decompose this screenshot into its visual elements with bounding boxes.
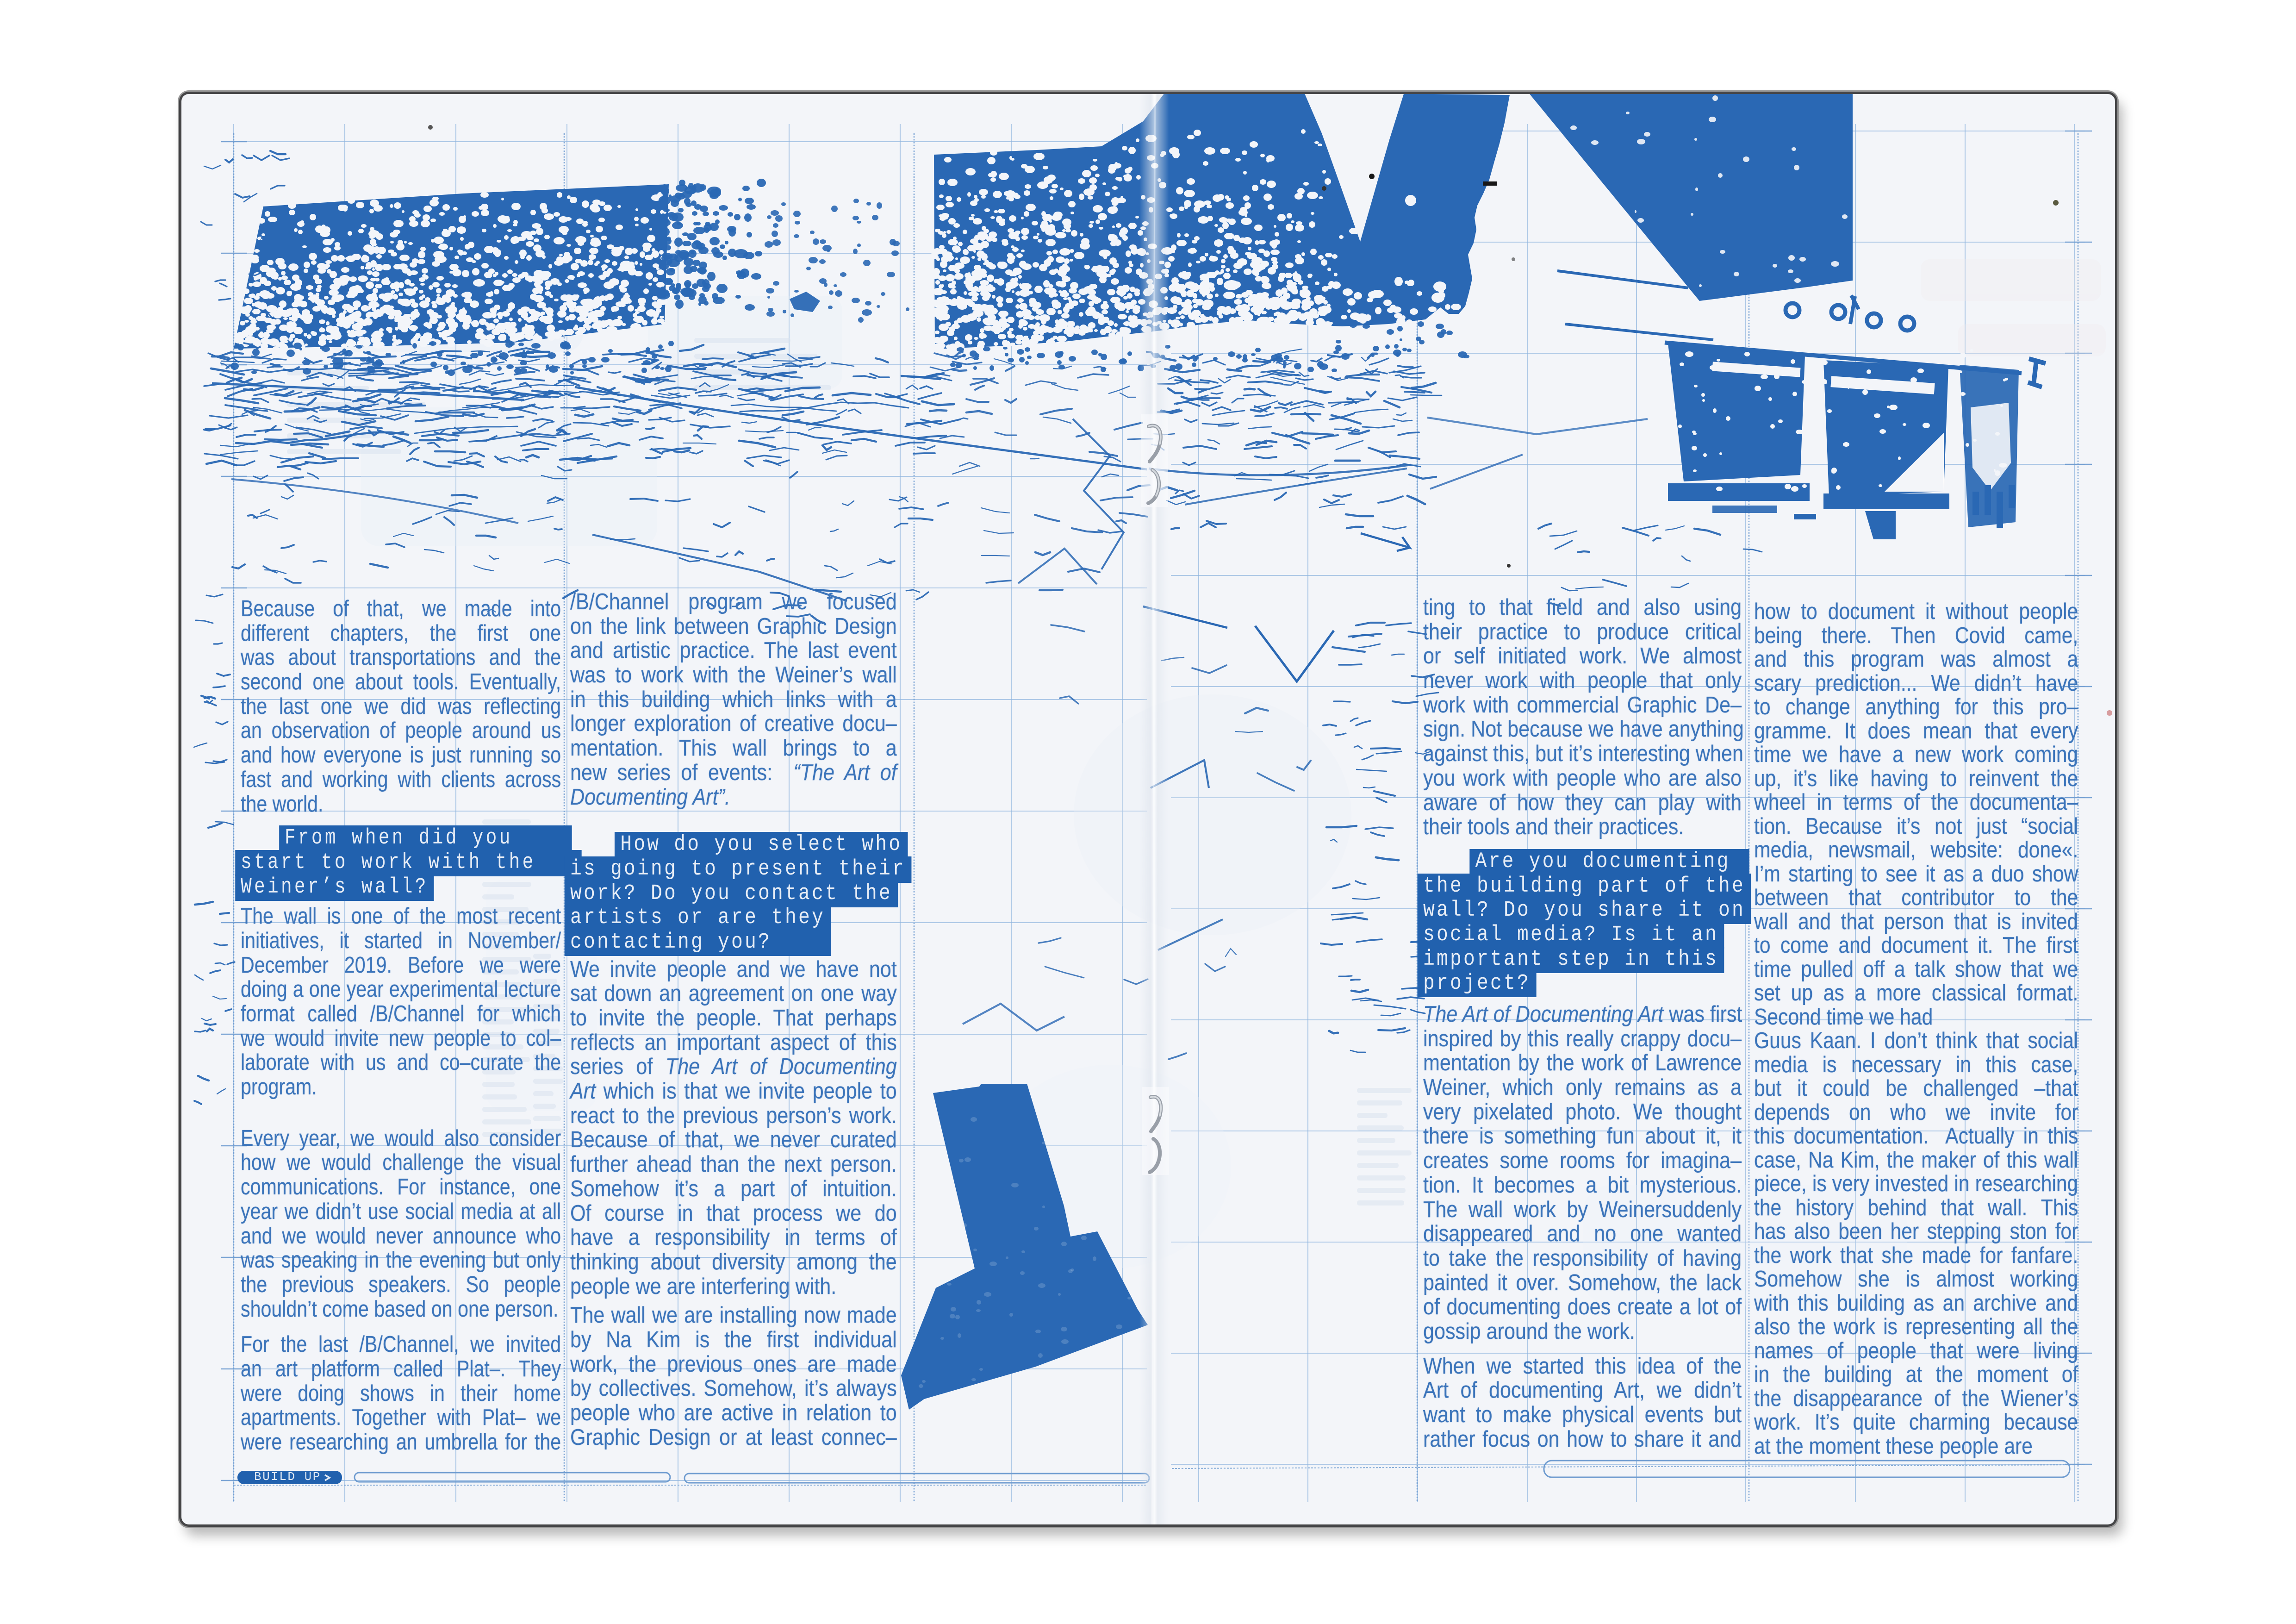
svg-text:BUILD UP: BUILD UP [254,1470,321,1484]
